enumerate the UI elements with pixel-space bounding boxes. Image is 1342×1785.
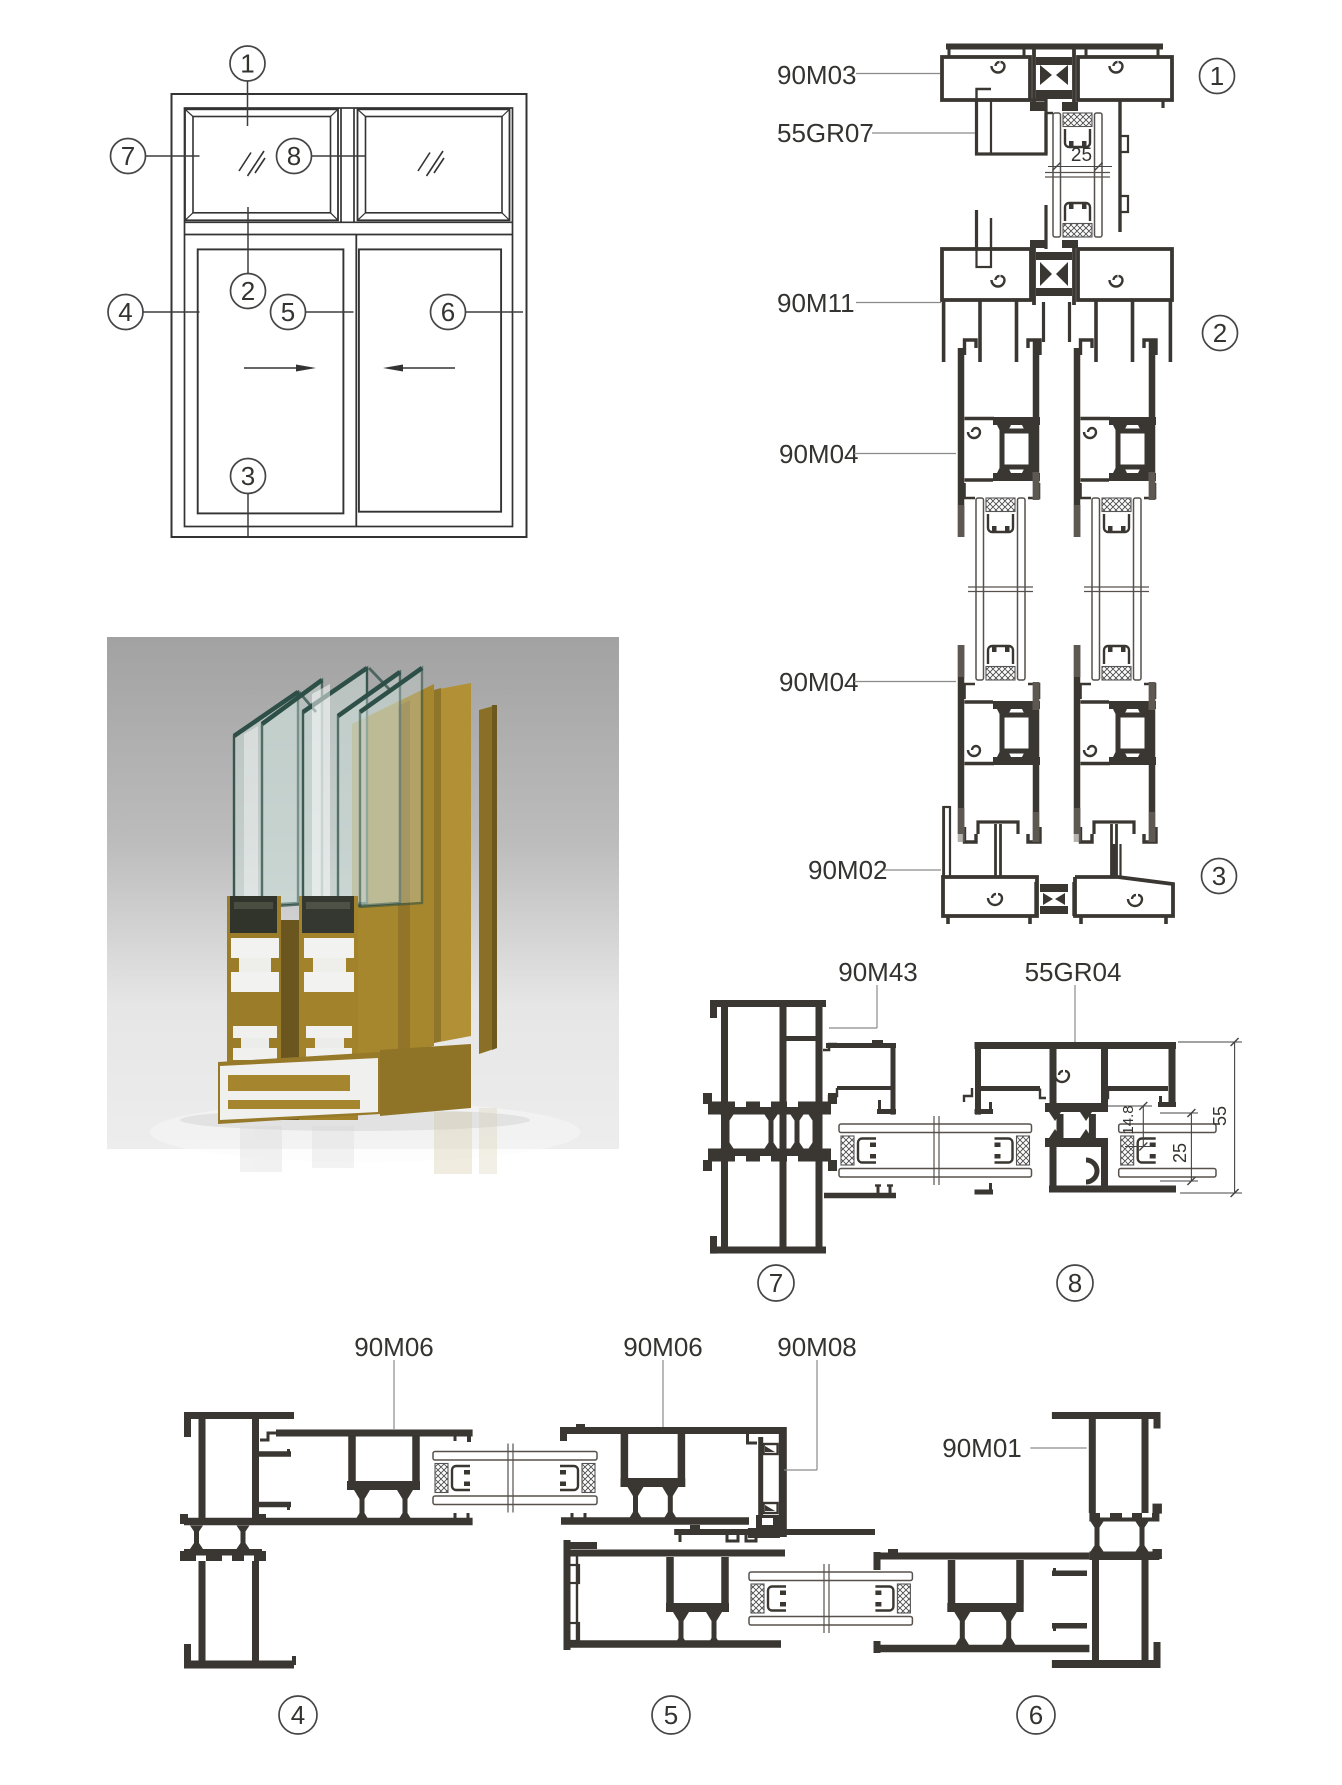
svg-text:2: 2 (241, 276, 255, 306)
svg-text:55GR04: 55GR04 (1025, 957, 1122, 987)
svg-text:1: 1 (240, 49, 254, 79)
svg-text:25: 25 (1071, 145, 1092, 166)
svg-text:55: 55 (1210, 1106, 1230, 1126)
svg-text:90M06: 90M06 (623, 1332, 703, 1362)
svg-text:90M03: 90M03 (777, 60, 857, 90)
svg-text:3: 3 (1212, 861, 1226, 891)
svg-text:90M11: 90M11 (777, 288, 855, 318)
svg-text:8: 8 (1068, 1268, 1082, 1298)
svg-text:2: 2 (1213, 318, 1227, 348)
svg-text:5: 5 (664, 1700, 678, 1730)
svg-text:55GR07: 55GR07 (777, 118, 874, 148)
svg-text:7: 7 (769, 1268, 783, 1298)
svg-text:4: 4 (291, 1700, 305, 1730)
svg-text:3: 3 (241, 461, 255, 491)
svg-text:14.8: 14.8 (1120, 1105, 1137, 1134)
svg-text:6: 6 (441, 297, 455, 327)
svg-text:90M02: 90M02 (808, 855, 888, 885)
svg-text:90M04: 90M04 (779, 667, 859, 697)
svg-text:1: 1 (1210, 61, 1224, 91)
svg-text:90M04: 90M04 (779, 439, 859, 469)
svg-text:5: 5 (281, 297, 295, 327)
svg-text:6: 6 (1029, 1700, 1043, 1730)
svg-text:90M08: 90M08 (777, 1332, 857, 1362)
svg-text:90M43: 90M43 (838, 957, 918, 987)
svg-text:90M06: 90M06 (354, 1332, 434, 1362)
svg-text:25: 25 (1170, 1143, 1190, 1163)
svg-text:90M01: 90M01 (942, 1433, 1022, 1463)
svg-text:4: 4 (118, 297, 132, 327)
svg-text:8: 8 (287, 141, 301, 171)
svg-text:7: 7 (121, 141, 135, 171)
